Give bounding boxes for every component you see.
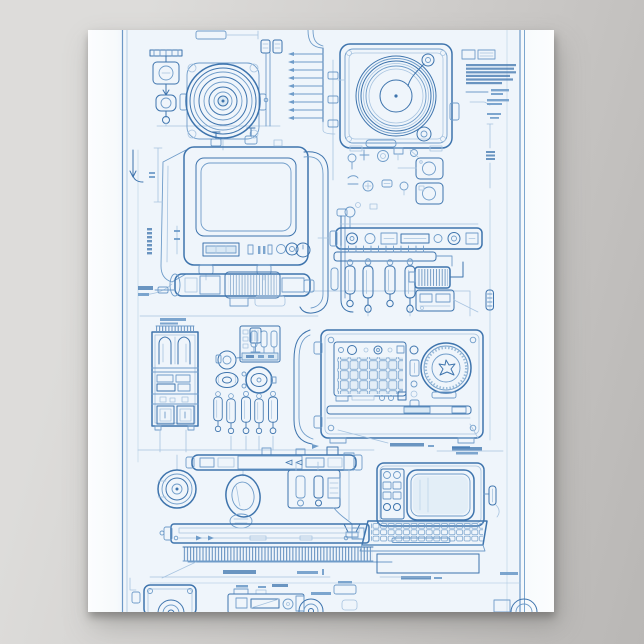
bottom-devices (130, 572, 537, 612)
control-faceplate (318, 207, 482, 277)
pin-ladder (288, 30, 335, 134)
turntable (328, 44, 459, 180)
connector-wires (261, 40, 282, 126)
poster (88, 30, 554, 612)
radio-pipe (294, 330, 319, 449)
scene-background (0, 0, 644, 644)
radio-unit (314, 330, 483, 449)
spec-text-block (462, 50, 516, 440)
computer-terminal (360, 447, 503, 580)
transformer (409, 267, 478, 312)
heat-sink (183, 547, 373, 561)
dimension-callouts (150, 562, 430, 578)
crt-tv (130, 128, 310, 294)
drive-assembly (158, 447, 369, 543)
parts-cabinet (152, 318, 198, 452)
gauge-column (214, 326, 280, 450)
blueprint-illustration (88, 30, 554, 612)
speaker-fan (180, 63, 266, 150)
small-parts (348, 148, 443, 209)
